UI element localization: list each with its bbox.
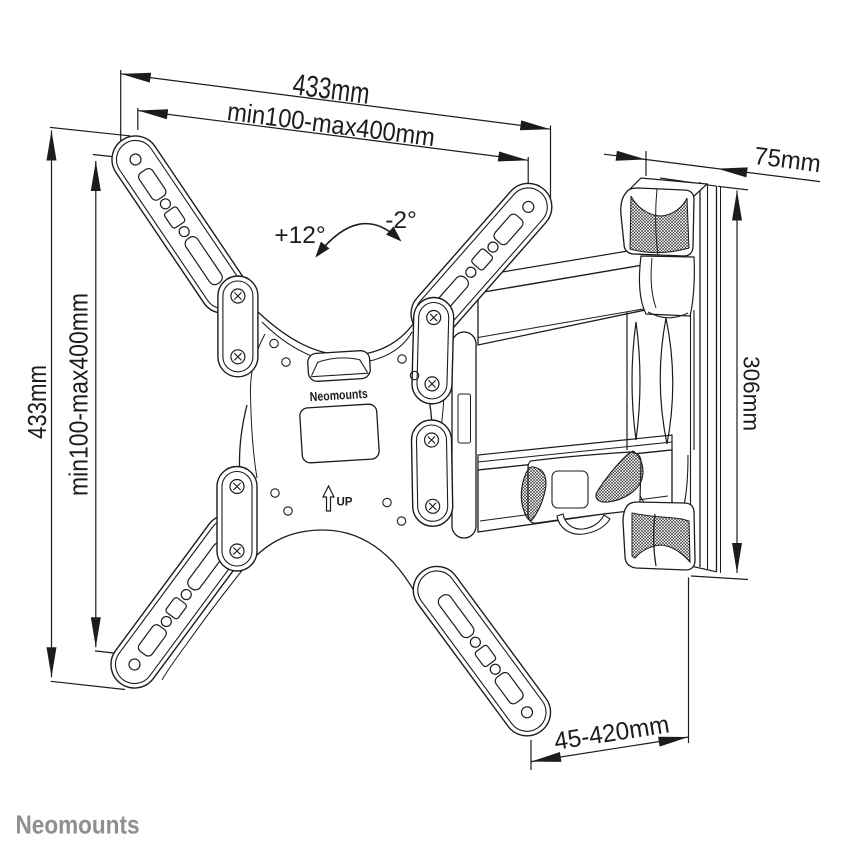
svg-text:+12°: +12° xyxy=(274,222,325,249)
svg-text:min100-max400mm: min100-max400mm xyxy=(66,293,94,496)
svg-text:306mm: 306mm xyxy=(739,356,765,431)
svg-text:-2°: -2° xyxy=(385,207,417,234)
svg-text:Neomounts: Neomounts xyxy=(16,810,140,840)
svg-text:433mm: 433mm xyxy=(24,365,52,439)
svg-text:UP: UP xyxy=(337,497,353,509)
